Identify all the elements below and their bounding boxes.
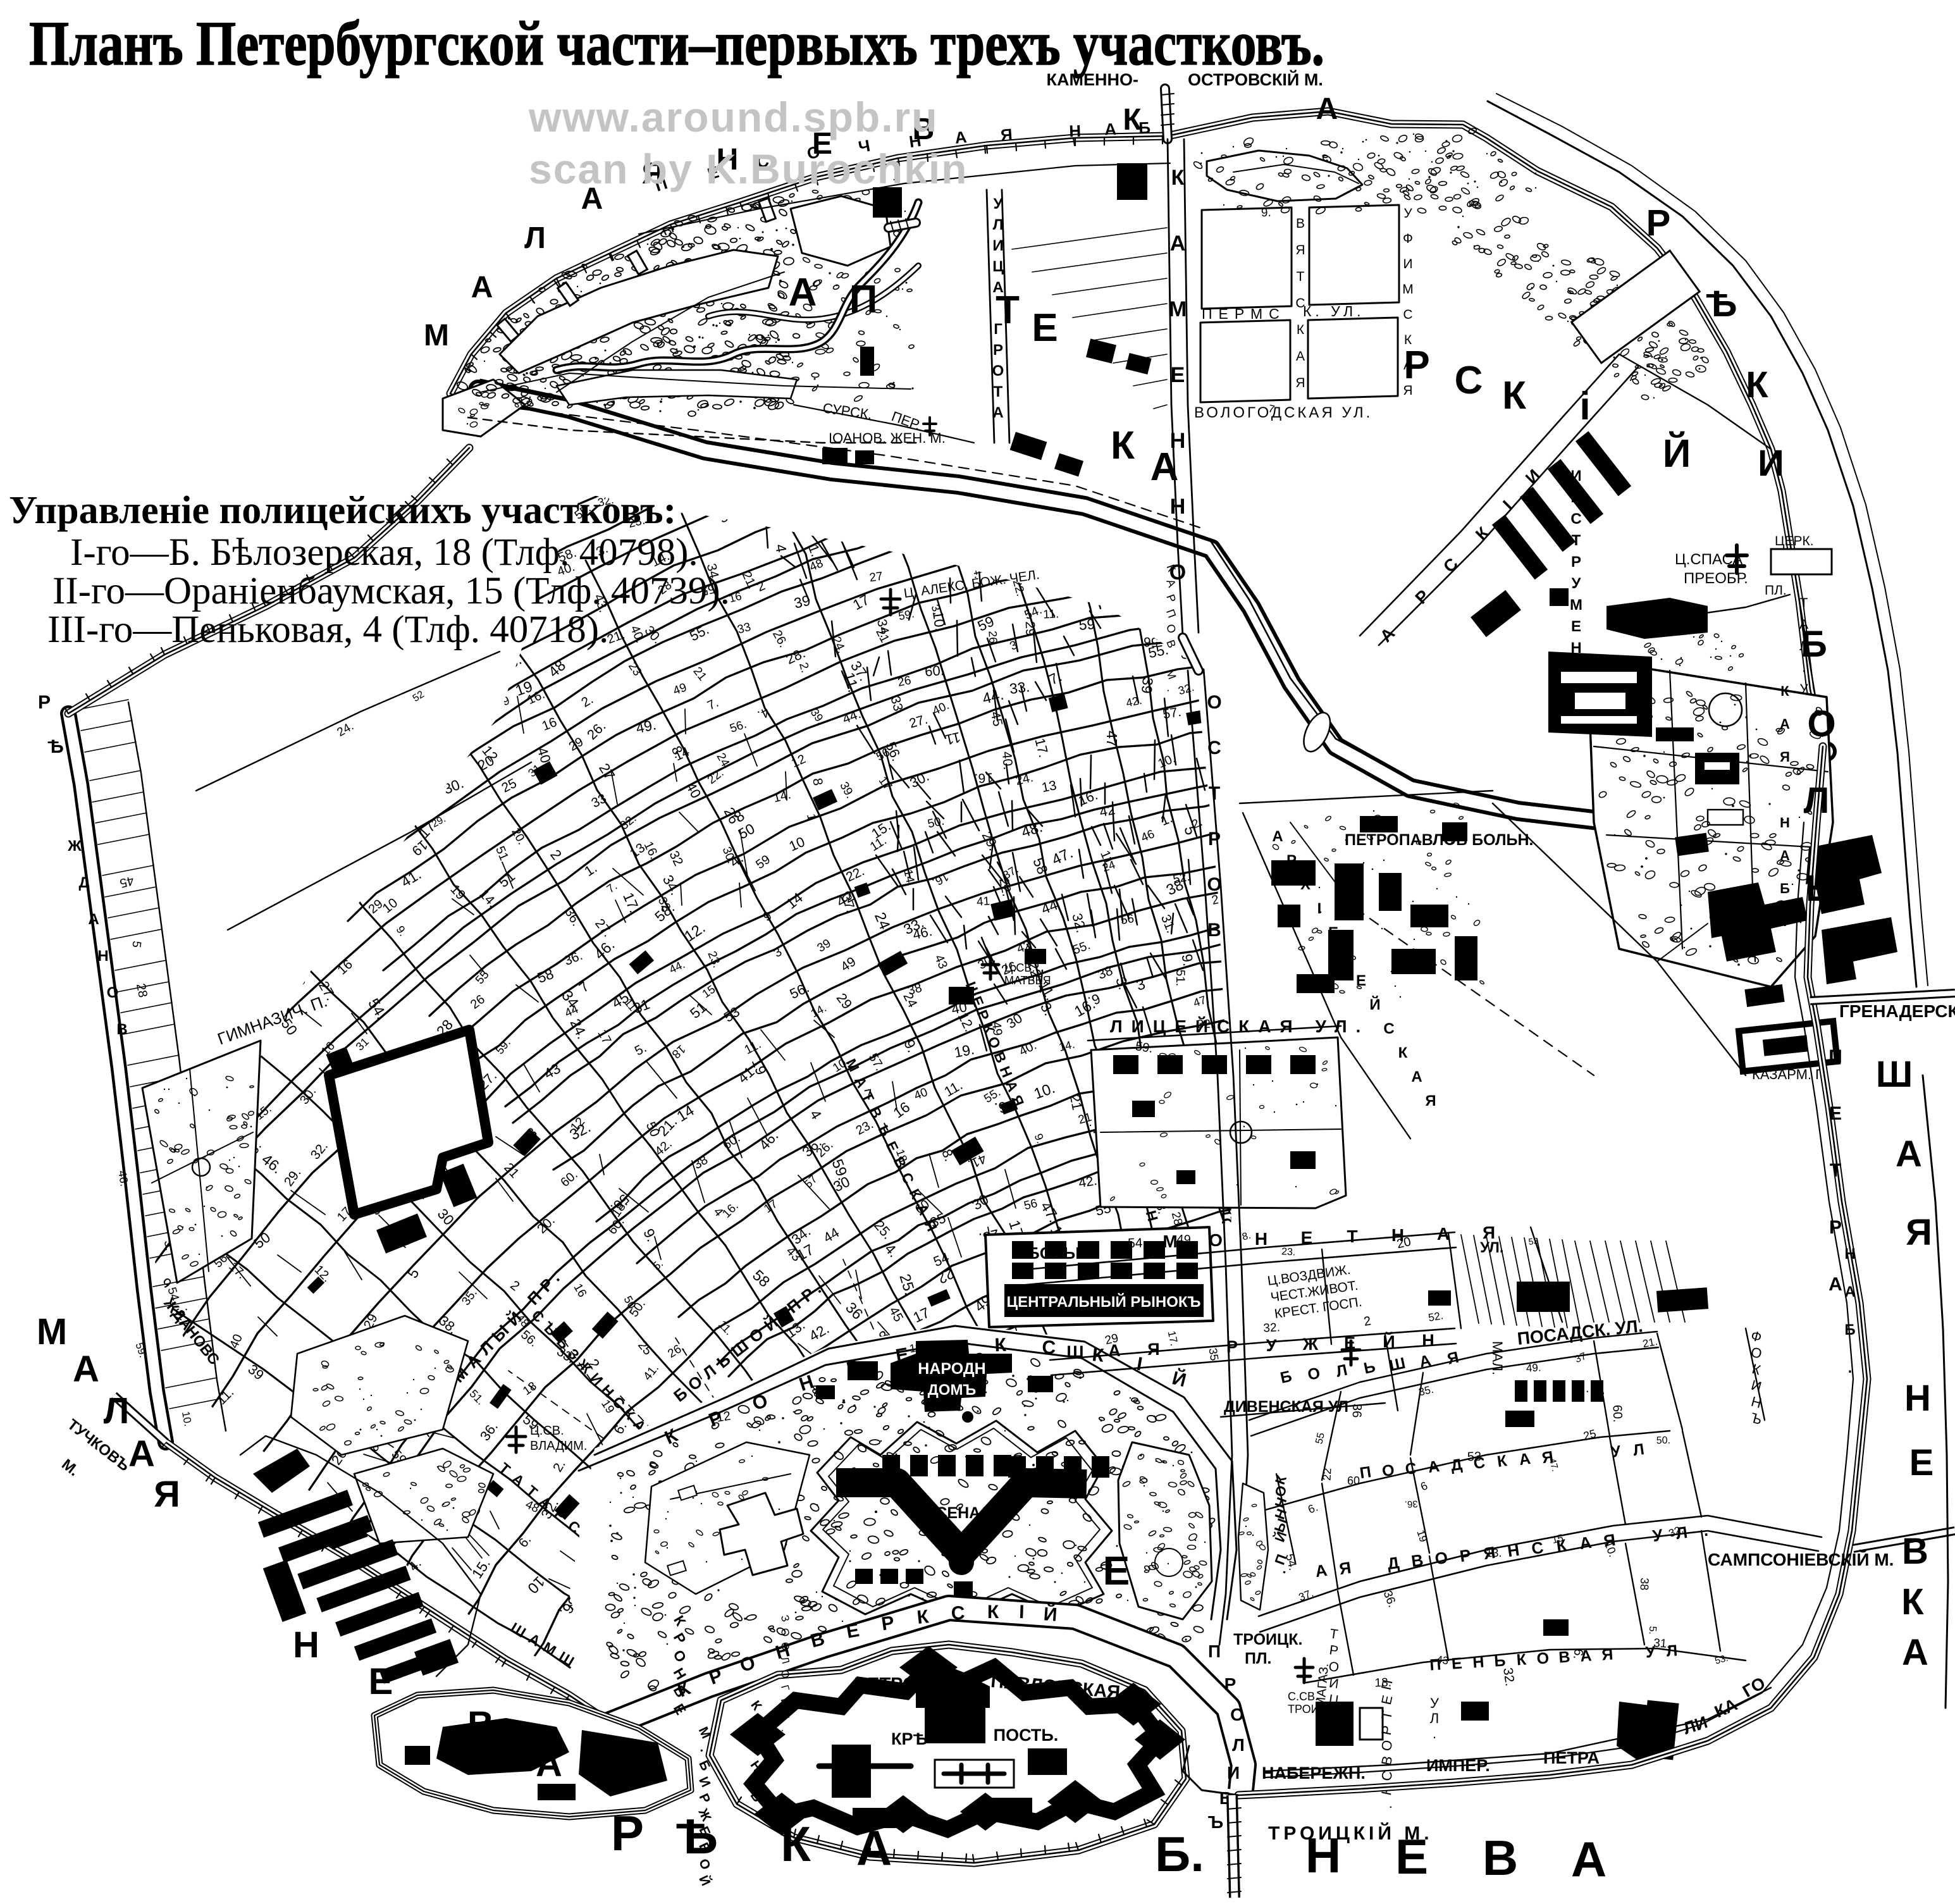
- svg-text:К: К: [1746, 364, 1768, 405]
- svg-text:Ц.СВ.: Ц.СВ.: [530, 1424, 564, 1438]
- svg-text:Я: Я: [1295, 243, 1305, 257]
- svg-text:13: 13: [1040, 778, 1058, 795]
- svg-text:.: .: [1783, 913, 1787, 929]
- svg-text:Ш: Ш: [1066, 1342, 1083, 1361]
- svg-text:Р: Р: [1829, 1217, 1842, 1238]
- svg-text:Е: Е: [369, 1661, 393, 1702]
- svg-text:scan by K.Burochkin: scan by K.Burochkin: [529, 145, 968, 192]
- svg-text:А: А: [73, 1349, 99, 1390]
- svg-text:Й: Й: [1043, 1603, 1058, 1625]
- svg-text:38: 38: [1638, 1578, 1651, 1591]
- svg-text:О: О: [1209, 1230, 1223, 1250]
- svg-text:А: А: [1427, 1457, 1441, 1476]
- svg-text:6.: 6.: [1570, 1648, 1586, 1660]
- svg-text:49.: 49.: [1176, 1232, 1195, 1247]
- svg-text:НАРОДН: НАРОДН: [918, 1360, 985, 1378]
- svg-text:М: М: [1163, 1232, 1177, 1251]
- svg-text:П: П: [849, 278, 878, 321]
- svg-text:Т: Т: [1209, 783, 1220, 804]
- svg-text:33.: 33.: [1009, 678, 1031, 697]
- svg-text:Х: Х: [1300, 876, 1311, 893]
- svg-text:ПОСТЬ.: ПОСТЬ.: [994, 1726, 1059, 1745]
- svg-text:К: К: [1123, 103, 1142, 137]
- svg-text:О: О: [1207, 692, 1221, 713]
- svg-text:А: А: [1150, 445, 1179, 489]
- svg-text:42.: 42.: [1078, 1173, 1098, 1190]
- svg-text:А: А: [992, 404, 1003, 421]
- svg-text:50.: 50.: [1656, 1435, 1671, 1446]
- svg-text:У: У: [994, 195, 1004, 213]
- svg-text:О: О: [1381, 1461, 1395, 1480]
- svg-text:ТРОИЦК.: ТРОИЦК.: [1233, 1631, 1303, 1648]
- svg-text:А: А: [1780, 716, 1790, 732]
- svg-text:Т: Т: [1347, 1227, 1357, 1246]
- svg-text:Е: Е: [1032, 306, 1058, 350]
- svg-text:А: А: [88, 911, 99, 928]
- svg-text:А: А: [954, 127, 968, 147]
- svg-text:Ъ: Ъ: [1208, 1812, 1223, 1832]
- svg-text:Н: Н: [1844, 1246, 1855, 1263]
- svg-text:Н: Н: [1780, 815, 1790, 831]
- svg-text:32.: 32.: [1197, 1018, 1214, 1031]
- svg-text:К. УЛ.: К. УЛ.: [1303, 303, 1365, 319]
- svg-text:32.: 32.: [1500, 1667, 1517, 1687]
- svg-text:Я: Я: [1000, 125, 1013, 144]
- svg-text:КАЗАРМ. П.: КАЗАРМ. П.: [1752, 1066, 1829, 1082]
- svg-text:Ѣ: Ѣ: [1706, 283, 1737, 325]
- svg-text:С: С: [1295, 296, 1305, 311]
- svg-text:Б.: Б.: [1155, 1826, 1204, 1882]
- svg-text:Ь: Ь: [1806, 868, 1832, 909]
- svg-text:Е: Е: [1395, 1829, 1428, 1884]
- svg-text:Т: Т: [1800, 596, 1808, 610]
- svg-text:Н: Н: [1422, 1331, 1434, 1350]
- svg-text:В: В: [467, 1704, 494, 1745]
- svg-text:ІІІ-го—Пеньковая, 4 (Тлф. 4071: ІІІ-го—Пеньковая, 4 (Тлф. 40718).: [47, 609, 608, 651]
- svg-text:И: И: [1403, 257, 1412, 271]
- svg-text:С: С: [1042, 1337, 1056, 1359]
- svg-text:Ш: Ш: [1876, 1054, 1913, 1095]
- svg-text:БОЛЬШ.: БОЛЬШ.: [1028, 1244, 1097, 1263]
- svg-text:Р: Р: [993, 342, 1003, 359]
- svg-text:Н: Н: [293, 1624, 319, 1666]
- svg-text:60.: 60.: [1610, 1405, 1625, 1423]
- svg-text:35: 35: [1206, 1347, 1221, 1362]
- svg-text:ЦЕНТРАЛЬНЫЙ РЫНОКЪ: ЦЕНТРАЛЬНЫЙ РЫНОКЪ: [1007, 1293, 1201, 1311]
- svg-text:Я: Я: [1780, 749, 1790, 765]
- svg-text:54: 54: [1128, 1236, 1143, 1251]
- svg-text:А: А: [1902, 1632, 1928, 1673]
- svg-text:59.: 59.: [1134, 1039, 1154, 1056]
- svg-text:Е: Е: [1829, 1103, 1842, 1124]
- svg-text:П: П: [1829, 1046, 1842, 1067]
- svg-text:ПЕТРО: ПЕТРО: [854, 1674, 916, 1695]
- svg-text:ВЛАДИМ.: ВЛАДИМ.: [530, 1439, 587, 1453]
- svg-text:Т: Т: [996, 288, 1020, 332]
- svg-text:Б: Б: [1844, 1321, 1855, 1338]
- svg-text:У: У: [1572, 575, 1582, 592]
- svg-text:9.: 9.: [1179, 953, 1197, 967]
- svg-text:Р: Р: [611, 1805, 644, 1861]
- svg-text:А: А: [1272, 828, 1283, 845]
- svg-text:К: К: [1111, 424, 1135, 467]
- svg-text:52.: 52.: [1428, 1309, 1445, 1324]
- svg-text:36: 36: [1350, 1404, 1364, 1418]
- svg-text:ТРОИЦЫ: ТРОИЦЫ: [1288, 1703, 1338, 1715]
- svg-text:І: І: [1019, 1602, 1025, 1623]
- svg-text:ПЛ.: ПЛ.: [1245, 1650, 1271, 1667]
- svg-text:28: 28: [133, 982, 150, 999]
- svg-text:У: У: [1430, 1695, 1440, 1711]
- svg-text:Я: Я: [1906, 1212, 1932, 1253]
- svg-text:Р: Р: [1286, 852, 1297, 869]
- svg-text:А: А: [789, 271, 817, 314]
- svg-text:С: С: [1455, 359, 1483, 402]
- svg-text:ПЕРМС: ПЕРМС: [1202, 306, 1286, 322]
- svg-text:Я: Я: [154, 1474, 180, 1515]
- svg-text:Н: Н: [1472, 1653, 1484, 1671]
- svg-text:И: И: [1758, 443, 1784, 484]
- svg-text:Н: Н: [1069, 121, 1082, 141]
- svg-text:В: В: [116, 1021, 127, 1038]
- svg-text:ІІ-го—Ораніенбаумская, 15 (Тлф: ІІ-го—Ораніенбаумская, 15 (Тлф. 40739).: [52, 570, 730, 612]
- svg-text:Н: Н: [1170, 495, 1186, 519]
- svg-text:Е: Е: [1571, 618, 1581, 635]
- svg-text:К: К: [994, 1335, 1007, 1356]
- svg-text:ПЕТРА: ПЕТРА: [1543, 1748, 1600, 1767]
- svg-text:Ь: Ь: [1494, 1652, 1507, 1670]
- svg-text:М: М: [1570, 597, 1582, 614]
- svg-text:46.: 46.: [116, 1170, 131, 1187]
- svg-text:НАБЕРЕЖН.: НАБЕРЕЖН.: [1262, 1764, 1366, 1783]
- svg-text:Ѣ: Ѣ: [47, 736, 64, 757]
- svg-text:І: І: [1317, 900, 1322, 917]
- svg-text:ГРЕНАДЕРСКІЙ М.: ГРЕНАДЕРСКІЙ М.: [1839, 1001, 1955, 1021]
- svg-text:Ф: Ф: [1403, 232, 1413, 246]
- svg-text:60: 60: [1347, 1474, 1360, 1487]
- svg-text:Л: Л: [1232, 1735, 1245, 1755]
- svg-text:Я: Я: [1147, 1340, 1159, 1359]
- svg-text:С: С: [1207, 738, 1221, 758]
- svg-text:Н: Н: [1904, 1378, 1931, 1419]
- svg-text:В: В: [1207, 920, 1221, 941]
- svg-text:Л: Л: [524, 221, 546, 255]
- svg-text:www.around.spb.ru: www.around.spb.ru: [528, 94, 939, 140]
- svg-text:О: О: [1434, 1548, 1449, 1569]
- svg-text:К: К: [1502, 374, 1526, 417]
- svg-text:А: А: [1518, 1450, 1532, 1469]
- svg-text:М: М: [1169, 297, 1187, 321]
- svg-text:А: А: [1104, 120, 1117, 139]
- svg-text:Е: Е: [1301, 1228, 1313, 1247]
- svg-text:43: 43: [1436, 1654, 1449, 1667]
- svg-text:К: К: [1780, 683, 1789, 699]
- svg-text:Р: Р: [1208, 829, 1221, 850]
- svg-text:Планъ Петербургской части–перв: Планъ Петербургской части–первыхъ трехъ …: [29, 8, 1324, 78]
- svg-text:Ѣ: Ѣ: [675, 1808, 718, 1864]
- svg-text:В: В: [1902, 1531, 1928, 1572]
- svg-text:ИМПЕР.: ИМПЕР.: [1426, 1756, 1490, 1775]
- svg-text:І-го—Б. Бѣлозерская, 18 (Тлф.: І-го—Б. Бѣлозерская, 18 (Тлф. 40798).: [70, 531, 698, 574]
- svg-text:О: О: [992, 362, 1004, 380]
- svg-text:САМПСОНІЕВСКІЙ М.: САМПСОНІЕВСКІЙ М.: [1708, 1549, 1894, 1569]
- svg-text:О: О: [1536, 1649, 1550, 1667]
- svg-text:41: 41: [976, 894, 990, 908]
- svg-text:21: 21: [1067, 1093, 1085, 1111]
- svg-text:А: А: [536, 1743, 562, 1784]
- svg-text:О: О: [1207, 874, 1221, 895]
- svg-text:В: В: [1558, 1648, 1570, 1666]
- svg-text:А: А: [128, 1433, 155, 1474]
- svg-text:С: С: [1570, 510, 1581, 528]
- svg-text:К: К: [780, 1816, 811, 1872]
- svg-text:Ж: Ж: [67, 838, 82, 855]
- svg-text:47.: 47.: [1104, 731, 1120, 751]
- svg-text:О: О: [107, 984, 119, 1001]
- svg-text:Е: Е: [1356, 972, 1366, 989]
- svg-text:26: 26: [897, 674, 913, 689]
- svg-text:Е: Е: [1103, 1548, 1130, 1593]
- svg-text:К: К: [1901, 1581, 1924, 1623]
- svg-text:А: А: [1411, 1068, 1422, 1085]
- svg-text:С.СВ.: С.СВ.: [1288, 1690, 1318, 1703]
- svg-text:Я: Я: [1601, 1645, 1614, 1664]
- svg-text:А: А: [1896, 1134, 1922, 1175]
- svg-text:Д: Д: [78, 874, 89, 891]
- svg-text:13.: 13.: [1486, 1547, 1502, 1559]
- svg-text:А: А: [1571, 1831, 1607, 1887]
- svg-text:Е: Е: [1328, 924, 1338, 941]
- svg-text:Н: Н: [1305, 1827, 1341, 1883]
- svg-text:О: О: [1807, 703, 1835, 745]
- svg-text:ДОМЪ: ДОМЪ: [928, 1382, 977, 1399]
- svg-text:Б: Б: [1780, 881, 1790, 896]
- svg-text:Б: Б: [1801, 624, 1827, 665]
- svg-text:С: С: [1403, 307, 1412, 322]
- svg-text:В: В: [1296, 216, 1305, 231]
- svg-text:А: А: [856, 1820, 892, 1876]
- svg-text:Ж: Ж: [1302, 1335, 1319, 1354]
- svg-text:Р: Р: [1571, 553, 1581, 571]
- svg-text:Н: Н: [97, 948, 108, 965]
- svg-text:Л: Л: [1804, 780, 1830, 821]
- svg-text:С: С: [951, 1603, 965, 1624]
- svg-text:У: У: [1266, 1336, 1278, 1355]
- svg-text:О: О: [1230, 1705, 1244, 1724]
- svg-text:А: А: [1780, 848, 1790, 863]
- svg-text:Л: Л: [104, 1390, 130, 1431]
- svg-text:С: С: [1383, 1020, 1394, 1037]
- svg-text:.: .: [1433, 1726, 1436, 1741]
- svg-text:Я: Я: [1295, 376, 1305, 390]
- svg-text:Р: Р: [1224, 1674, 1237, 1694]
- svg-text:АРСЕНАЛЪ.: АРСЕНАЛЪ.: [914, 1504, 1009, 1522]
- svg-text:М: М: [1402, 282, 1414, 297]
- svg-text:ВОЛОГОДСКАЯ УЛ.: ВОЛОГОДСКАЯ УЛ.: [1194, 404, 1372, 421]
- svg-text:К: К: [1516, 1650, 1527, 1669]
- svg-text:27: 27: [868, 570, 884, 585]
- svg-text:ПЕТРОПАВЛОВ БОЛЬН.: ПЕТРОПАВЛОВ БОЛЬН.: [1345, 831, 1533, 849]
- svg-text:К: К: [987, 1602, 999, 1623]
- svg-text:У: У: [1403, 206, 1412, 221]
- svg-text:39: 39: [1138, 677, 1156, 695]
- svg-text:МАТВЕЯ: МАТВЕЯ: [1004, 974, 1051, 987]
- svg-text:А: А: [1316, 92, 1338, 126]
- svg-text:Ц: Ц: [992, 258, 1004, 275]
- svg-text:М: М: [424, 319, 449, 352]
- svg-text:5.: 5.: [1647, 1626, 1658, 1635]
- svg-text:А: А: [471, 271, 493, 304]
- svg-text:Т: Т: [1830, 1160, 1841, 1181]
- svg-text:Л: Л: [993, 216, 1004, 233]
- svg-text:ПЛ.: ПЛ.: [1765, 583, 1787, 598]
- svg-text:32.: 32.: [1263, 1321, 1280, 1335]
- svg-text:9.: 9.: [1261, 206, 1272, 220]
- svg-text:53: 53: [1528, 1235, 1539, 1247]
- svg-text:К: К: [1171, 166, 1185, 190]
- svg-text:29: 29: [1023, 621, 1038, 636]
- svg-text:Т: Т: [994, 383, 1003, 400]
- svg-text:Й: Й: [1369, 996, 1380, 1013]
- svg-text:К: К: [1398, 1044, 1408, 1061]
- svg-text:М: М: [37, 1311, 67, 1352]
- svg-text:А: А: [1829, 1274, 1842, 1295]
- svg-text:Т: Т: [1297, 269, 1305, 284]
- svg-text:Е: Е: [1171, 363, 1185, 387]
- svg-text:И: И: [1227, 1763, 1240, 1783]
- svg-text:Р: Р: [1646, 202, 1671, 244]
- svg-text:31.: 31.: [1653, 1636, 1670, 1651]
- svg-text:К: К: [1297, 323, 1305, 337]
- svg-text:МАЛ.: МАЛ.: [1489, 1341, 1505, 1375]
- svg-text:В: В: [1483, 1830, 1518, 1886]
- svg-text:22: 22: [1320, 1468, 1333, 1481]
- svg-text:Л: Л: [1430, 1710, 1439, 1726]
- svg-text:Я: Я: [1425, 1092, 1436, 1110]
- svg-text:КРѢ: КРѢ: [891, 1729, 928, 1748]
- svg-text:53.: 53.: [1467, 1450, 1486, 1464]
- svg-text:51.: 51.: [1173, 970, 1187, 986]
- svg-text:Р: Р: [1342, 948, 1352, 965]
- svg-text:Н: Н: [1255, 1229, 1267, 1249]
- svg-text:Е: Е: [1909, 1442, 1934, 1483]
- svg-text:Управленіе полицейскихъ участк: Управленіе полицейскихъ участковъ:: [9, 489, 676, 532]
- svg-text:А: А: [1844, 1283, 1855, 1301]
- svg-text:.: .: [1848, 1359, 1853, 1376]
- svg-text:Й: Й: [1663, 431, 1691, 476]
- svg-text:И: И: [992, 237, 1003, 254]
- svg-text:49.: 49.: [1526, 1361, 1541, 1374]
- svg-text:Р: Р: [944, 1337, 958, 1359]
- svg-text:36.: 36.: [1404, 1498, 1418, 1509]
- svg-text:23.: 23.: [1281, 1246, 1296, 1258]
- svg-text:А: А: [1170, 232, 1186, 256]
- svg-text:Е: Е: [1451, 1654, 1463, 1672]
- svg-text:А: А: [1296, 349, 1305, 364]
- svg-text:Р: Р: [1403, 343, 1429, 387]
- svg-text:ЦЕРК.: ЦЕРК.: [1775, 534, 1814, 548]
- svg-text:Р: Р: [38, 692, 51, 713]
